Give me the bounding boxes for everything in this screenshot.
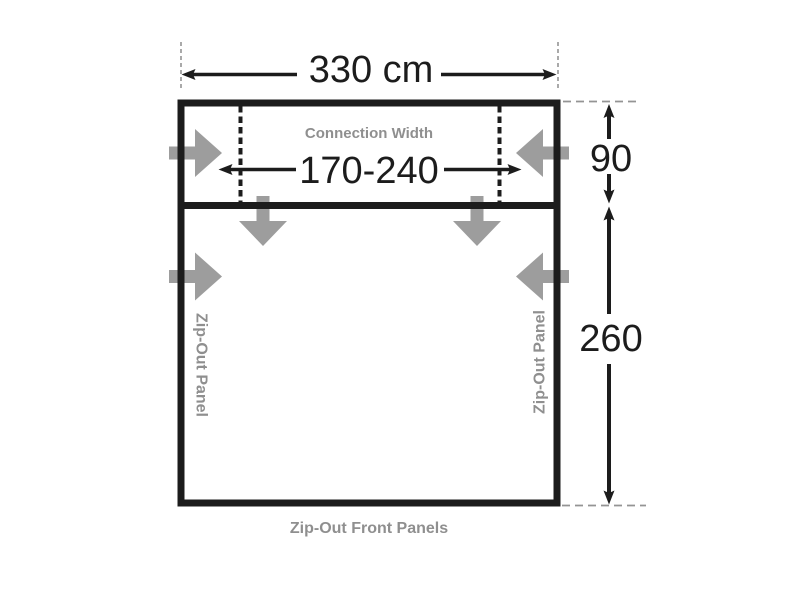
svg-text:Connection Width: Connection Width	[305, 125, 433, 142]
svg-text:170-240: 170-240	[299, 150, 438, 192]
svg-text:Zip-Out Panel: Zip-Out Panel	[532, 310, 549, 414]
svg-text:Zip-Out Panel: Zip-Out Panel	[193, 313, 210, 417]
svg-text:260: 260	[579, 318, 642, 360]
svg-text:90: 90	[590, 138, 632, 180]
svg-text:330 cm: 330 cm	[309, 49, 434, 91]
svg-text:Zip-Out Front Panels: Zip-Out Front Panels	[290, 520, 448, 537]
